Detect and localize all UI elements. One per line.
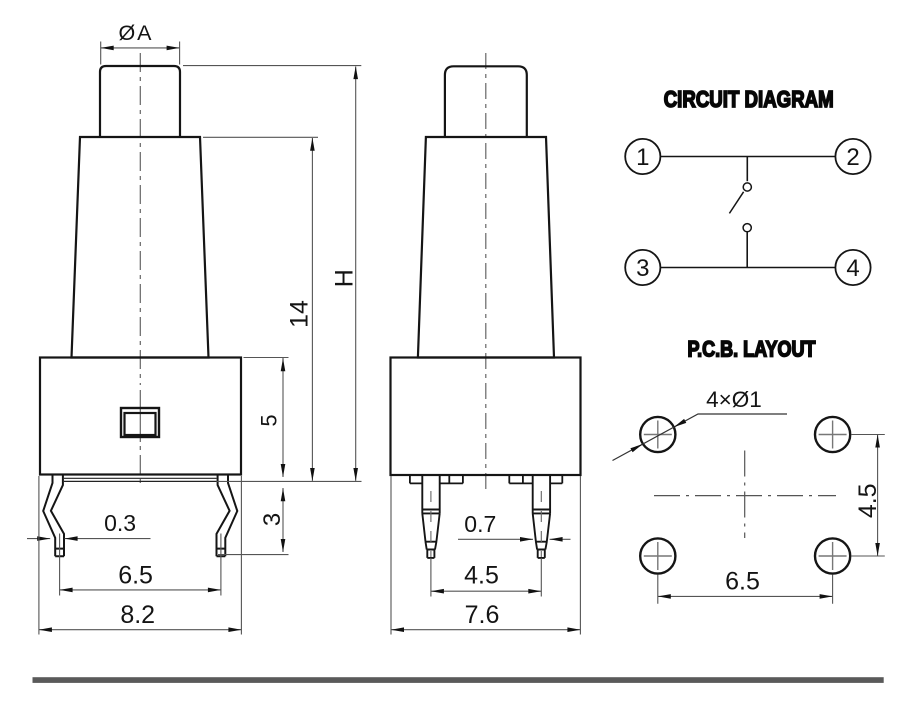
svg-text:4.5: 4.5	[854, 483, 882, 518]
svg-text:4: 4	[846, 255, 859, 282]
svg-text:P.C.B. LAYOUT: P.C.B. LAYOUT	[688, 337, 816, 362]
svg-text:2: 2	[846, 144, 859, 171]
svg-text:ØA: ØA	[118, 21, 153, 45]
svg-text:8.2: 8.2	[120, 601, 155, 629]
svg-text:6.5: 6.5	[118, 562, 153, 590]
svg-text:7.6: 7.6	[465, 601, 500, 629]
svg-text:CIRCUIT DIAGRAM: CIRCUIT DIAGRAM	[664, 86, 834, 112]
svg-text:14: 14	[286, 300, 314, 328]
svg-text:0.3: 0.3	[104, 510, 136, 536]
svg-text:H: H	[331, 269, 359, 287]
svg-text:5: 5	[256, 414, 281, 426]
svg-text:3: 3	[259, 513, 286, 526]
svg-text:0.7: 0.7	[464, 511, 496, 537]
svg-text:1: 1	[636, 144, 649, 171]
svg-text:4×Ø1: 4×Ø1	[706, 387, 762, 412]
svg-text:4.5: 4.5	[464, 562, 499, 590]
svg-text:6.5: 6.5	[725, 568, 760, 596]
svg-text:3: 3	[636, 255, 649, 282]
